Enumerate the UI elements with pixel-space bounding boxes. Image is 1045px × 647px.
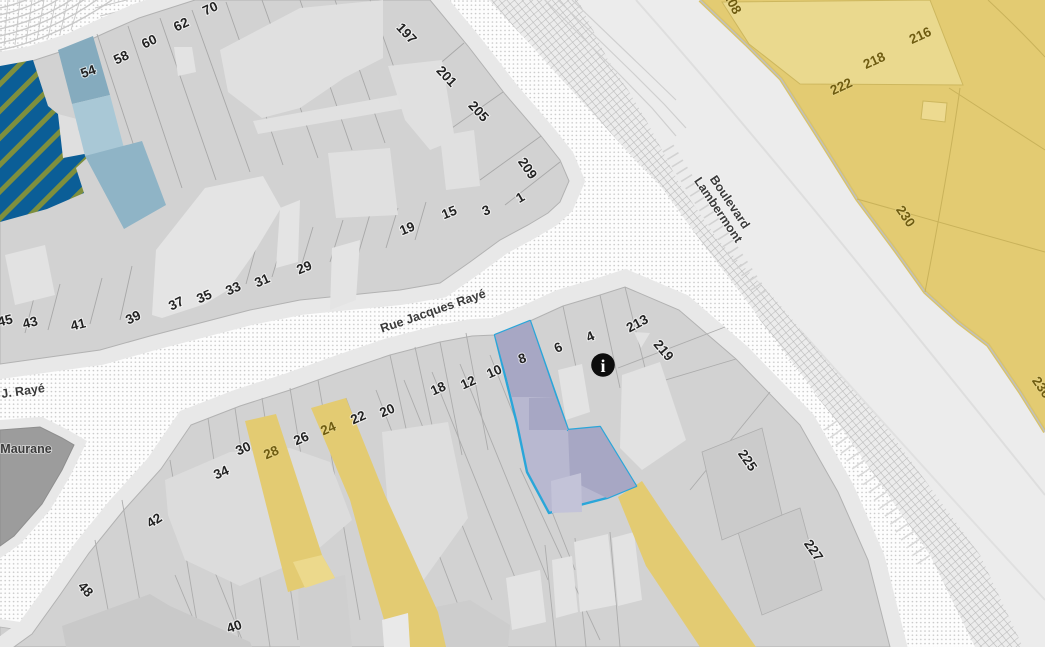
svg-text:Maurane: Maurane (0, 442, 51, 456)
svg-text:i: i (600, 356, 605, 376)
